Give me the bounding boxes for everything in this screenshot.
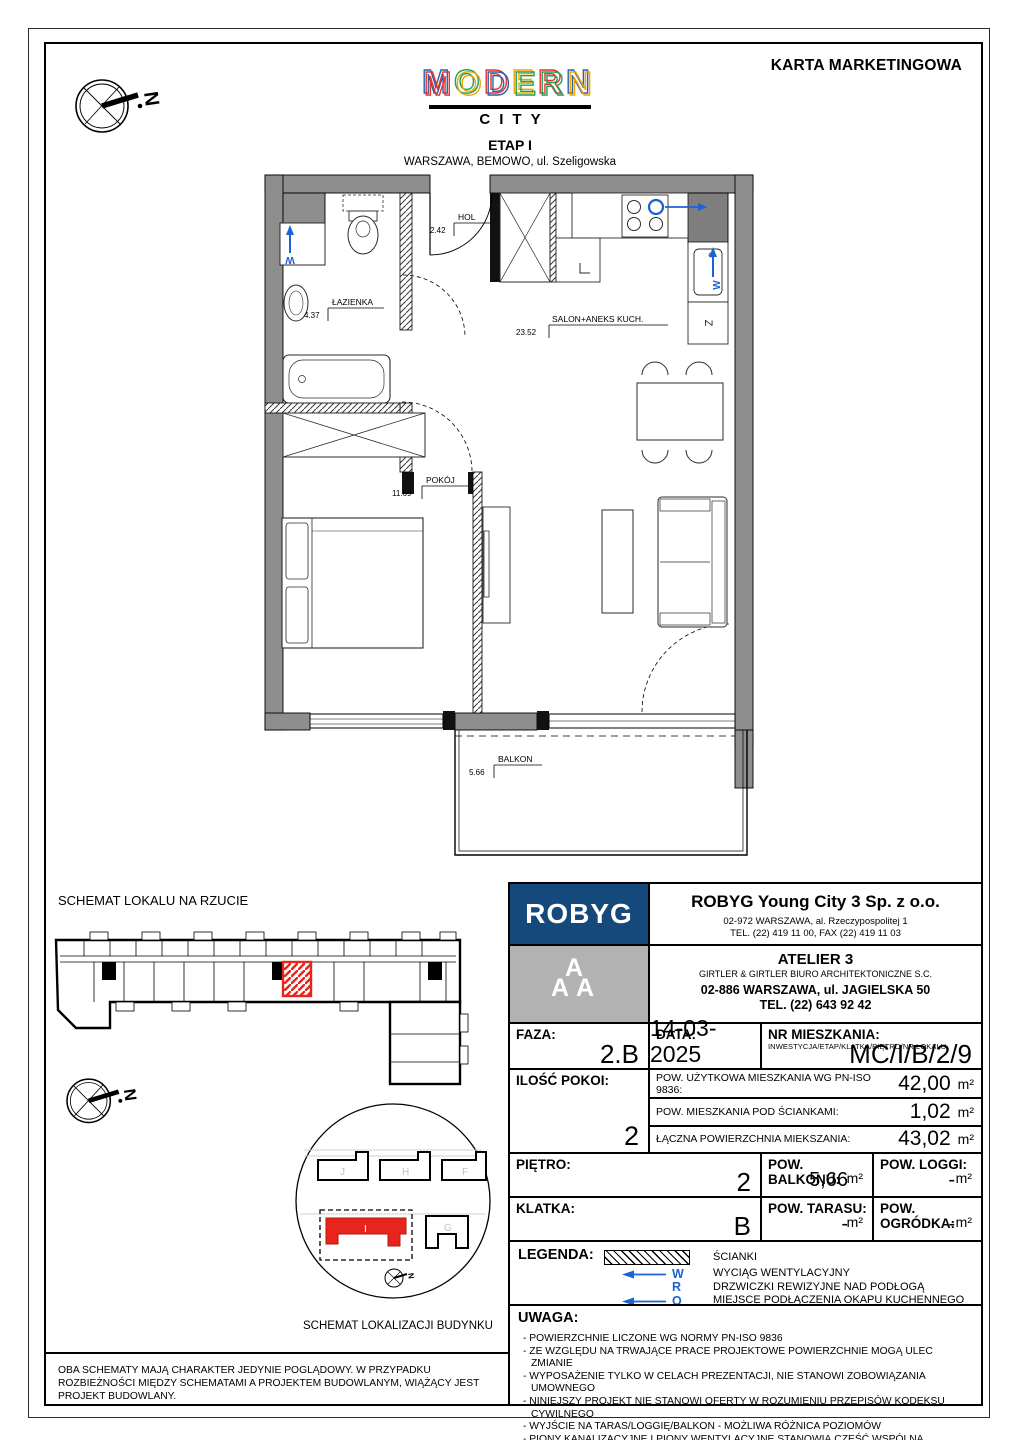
legend-item-label: WYCIĄG WENTYLACYJNY bbox=[713, 1267, 850, 1279]
area-unit: m² bbox=[958, 1131, 974, 1147]
area-row-laczna: ŁĄCZNA POWIERZCHNIA MIEKSZANIA: 43,02 m² bbox=[650, 1125, 981, 1152]
klatka-cell: KLATKA: B bbox=[510, 1198, 760, 1240]
area-value: 42,00 bbox=[898, 1072, 951, 1096]
logo-letter: O bbox=[456, 65, 482, 102]
vent-marker-kitchen: W bbox=[712, 280, 723, 290]
disclaimer-note: OBA SCHEMATY MAJĄ CHARAKTER JEDYNIE POGL… bbox=[44, 1352, 508, 1406]
balkon-unit: m² bbox=[847, 1165, 863, 1191]
legend-label: LEGENDA: bbox=[518, 1247, 594, 1263]
room-area: 5.66 bbox=[469, 768, 485, 777]
taras-unit: m² bbox=[847, 1209, 863, 1235]
room-name: ŁAZIENKA bbox=[332, 297, 373, 307]
pietro-row: PIĘTRO: 2 POW. BALKONU: 5,66 m² POW. LOG… bbox=[510, 1152, 981, 1196]
legend-arrow-icon bbox=[622, 1270, 666, 1279]
building-location-schematic: J H F G I N bbox=[292, 1098, 498, 1313]
architect-phone: TEL. (22) 643 92 42 bbox=[650, 998, 981, 1012]
ogrodek-value: - bbox=[948, 1211, 955, 1237]
legend-item-label: ŚCIANKI bbox=[713, 1251, 757, 1263]
north-compass-icon: N bbox=[70, 70, 166, 140]
document-title: KARTA MARKETINGOWA bbox=[771, 57, 962, 75]
taras-cell: POW. TARASU: - m² bbox=[760, 1198, 872, 1240]
bedroom-furniture bbox=[282, 413, 425, 648]
building-label: H bbox=[402, 1167, 409, 1178]
atelier-logo-letter: A bbox=[576, 976, 594, 1001]
areas-cell: POW. UŻYTKOWA MIESZKANIA WG PN-ISO 9836:… bbox=[648, 1070, 981, 1152]
sink-marker: Z bbox=[702, 320, 714, 327]
rooms-areas-row: ILOŚĆ POKOI: 2 POW. UŻYTKOWA MIESZKANIA … bbox=[510, 1068, 981, 1152]
logo-city-text: CITY bbox=[364, 111, 656, 128]
balkon-cell: POW. BALKONU: 5,66 m² bbox=[760, 1154, 872, 1196]
architect-subtitle: GIRTLER & GIRTLER BIURO ARCHITEKTONICZNE… bbox=[650, 969, 981, 979]
architect-info: ATELIER 3 GIRTLER & GIRTLER BIURO ARCHIT… bbox=[648, 946, 981, 1022]
loggia-cell: POW. LOGGI: - m² bbox=[872, 1154, 981, 1196]
area-row-uzytkowa: POW. UŻYTKOWA MIESZKANIA WG PN-ISO 9836:… bbox=[650, 1070, 981, 1097]
building-label-highlighted: I bbox=[364, 1224, 367, 1235]
data-value: 14-03-2025 bbox=[650, 1015, 758, 1067]
atelier-logo-letter: A bbox=[551, 976, 569, 1001]
room-area: 2.42 bbox=[430, 226, 446, 235]
uwaga-item: - ZE WZGLĘDU NA TRWAJĄCE PRACE PROJEKTOW… bbox=[523, 1346, 975, 1371]
robyg-logo-cell: ROBYG bbox=[510, 884, 648, 944]
balcony-outline bbox=[455, 730, 747, 855]
compass-letter: N bbox=[120, 1088, 140, 1103]
klatka-row: KLATKA: B POW. TARASU: - m² POW. OGRÓDKA… bbox=[510, 1196, 981, 1240]
logo-underline bbox=[429, 105, 591, 109]
location-schematic-title: SCHEMAT LOKALIZACJI BUDYNKU bbox=[286, 1320, 510, 1332]
uwaga-list: - POWIERZCHNIE LICZONE WG NORMY PN-ISO 9… bbox=[523, 1333, 975, 1440]
faza-label: FAZA: bbox=[516, 1027, 556, 1042]
uwaga-row: UWAGA: - POWIERZCHNIE LICZONE WG NORMY P… bbox=[510, 1304, 981, 1404]
area-unit: m² bbox=[958, 1104, 974, 1120]
modern-city-logo: M O D E R N M O D E R N bbox=[420, 58, 600, 104]
faza-value: 2.B bbox=[600, 1041, 639, 1067]
ogrodek-cell: POW. OGRÓDKA: - m² bbox=[872, 1198, 981, 1240]
pietro-cell: PIĘTRO: 2 bbox=[510, 1154, 760, 1196]
room-name: POKÓJ bbox=[426, 475, 455, 485]
nr-cell: NR MIESZKANIA: INWESTYCJA/ETAP/KLATKA/PI… bbox=[760, 1024, 981, 1068]
header-block: M O D E R N M O D E R N CITY ETAP I WARS… bbox=[364, 58, 656, 168]
area-value: 1,02 bbox=[910, 1100, 951, 1124]
architect-name: ATELIER 3 bbox=[650, 951, 981, 968]
uwaga-item: - PIONY KANALIZACYJNE I PIONY WENTYLACYJ… bbox=[523, 1434, 975, 1440]
faza-data-nr-row: FAZA: 2.B DATA: 14-03-2025 NR MIESZKANIA… bbox=[510, 1022, 981, 1068]
apartment-floor-plan: W W Z ŁAZIENKA bbox=[250, 163, 760, 873]
ogrodek-unit: m² bbox=[956, 1209, 972, 1235]
building-label: J bbox=[340, 1167, 345, 1178]
north-compass-icon-2: N bbox=[62, 1070, 142, 1130]
label-hol: HOL 2.42 bbox=[430, 212, 490, 236]
room-name: SALON+ANEKS KUCH. bbox=[552, 314, 643, 324]
logo-letter: R bbox=[540, 65, 564, 102]
uwaga-item: - WYJŚCIE NA TARAS/LOGGIĘ/BALKON - MOŻLI… bbox=[523, 1421, 975, 1434]
architect-row: A A A ATELIER 3 GIRTLER & GIRTLER BIURO … bbox=[510, 944, 981, 1022]
legend-row: LEGENDA: ŚCIANKI W WYCIĄG WENTYLACYJNY R… bbox=[510, 1240, 981, 1304]
rooms-value: 2 bbox=[624, 1123, 639, 1149]
legend-item-label: DRZWICZKI REWIZYJNE NAD PODŁOGĄ bbox=[713, 1281, 924, 1293]
room-area: 23.52 bbox=[516, 328, 537, 337]
nr-value: MC/I/B/2/9 bbox=[849, 1041, 972, 1067]
label-lazienka: ŁAZIENKA 4.37 bbox=[304, 297, 384, 321]
developer-name: ROBYG Young City 3 Sp. z o.o. bbox=[650, 892, 981, 912]
developer-row: ROBYG ROBYG Young City 3 Sp. z o.o. 02-9… bbox=[510, 884, 981, 944]
room-area: 4.37 bbox=[304, 311, 320, 320]
building-label: F bbox=[462, 1167, 468, 1178]
atelier-logo-cell: A A A bbox=[510, 946, 648, 1022]
uwaga-item: - POWIERZCHNIE LICZONE WG NORMY PN-ISO 9… bbox=[523, 1333, 975, 1346]
uwaga-item: - NINIEJSZY PROJEKT NIE STANOWI OFERTY W… bbox=[523, 1396, 975, 1421]
pietro-label: PIĘTRO: bbox=[516, 1157, 571, 1172]
data-cell: DATA: 14-03-2025 bbox=[648, 1024, 760, 1068]
legend-symbol-w: W bbox=[672, 1267, 698, 1281]
compass-letter: N bbox=[139, 90, 163, 107]
vent-marker-bathroom: W bbox=[285, 254, 295, 265]
dining-table bbox=[637, 383, 723, 440]
atelier3-logo: A A A bbox=[510, 946, 648, 1022]
uwaga-label: UWAGA: bbox=[518, 1310, 578, 1326]
uwaga-item: - WYPOSAŻENIE TYLKO W CELACH PREZENTACJI… bbox=[523, 1371, 975, 1396]
architect-address: 02-886 WARSZAWA, ul. JAGIELSKA 50 bbox=[650, 983, 981, 997]
pietro-value: 2 bbox=[737, 1169, 751, 1195]
building-label: G bbox=[444, 1223, 452, 1234]
room-area: 11.69 bbox=[392, 489, 412, 498]
robyg-logo: ROBYG bbox=[510, 884, 648, 944]
label-balkon: BALKON 5.66 bbox=[469, 754, 542, 778]
loggia-unit: m² bbox=[956, 1165, 972, 1191]
label-salon: SALON+ANEKS KUCH. 23.52 bbox=[516, 314, 668, 338]
room-name: BALKON bbox=[498, 754, 533, 764]
scianki-hatch-swatch bbox=[604, 1250, 690, 1265]
rooms-count-cell: ILOŚĆ POKOI: 2 bbox=[510, 1070, 648, 1152]
area-label: ŁĄCZNA POWIERZCHNIA MIEKSZANIA: bbox=[656, 1133, 850, 1145]
rooms-label: ILOŚĆ POKOI: bbox=[516, 1073, 609, 1088]
logo-letter: D bbox=[486, 65, 510, 102]
developer-address: 02-972 WARSZAWA, al. Rzeczypospolitej 1 bbox=[650, 916, 981, 927]
highlighted-unit bbox=[283, 962, 311, 996]
marketing-info-table: ROBYG ROBYG Young City 3 Sp. z o.o. 02-9… bbox=[508, 882, 983, 1406]
area-unit: m² bbox=[958, 1076, 974, 1092]
area-label: POW. UŻYTKOWA MIESZKANIA WG PN-ISO 9836: bbox=[656, 1072, 898, 1096]
stage-label: ETAP I bbox=[364, 137, 656, 153]
klatka-label: KLATKA: bbox=[516, 1201, 575, 1216]
klatka-value: B bbox=[734, 1213, 751, 1239]
logo-letter: N bbox=[568, 65, 592, 102]
balkon-value: 5,66 bbox=[809, 1167, 848, 1193]
logo-letter: E bbox=[514, 65, 536, 102]
area-label: POW. MIESZKANIA POD ŚCIANKAMI: bbox=[656, 1106, 839, 1118]
loggia-value: - bbox=[948, 1167, 955, 1193]
room-labels: ŁAZIENKA 4.37 HOL 2.42 SALON+ANEKS KUCH.… bbox=[304, 212, 668, 778]
developer-phone: TEL. (22) 419 11 00, FAX (22) 419 11 03 bbox=[650, 928, 981, 939]
floor-schematic-title: SCHEMAT LOKALU NA RZUCIE bbox=[58, 893, 248, 908]
legend-symbol-r: R bbox=[672, 1280, 698, 1294]
faza-cell: FAZA: 2.B bbox=[510, 1024, 648, 1068]
livingroom-furniture bbox=[483, 362, 727, 627]
developer-info: ROBYG Young City 3 Sp. z o.o. 02-972 WAR… bbox=[648, 884, 981, 944]
area-value: 43,02 bbox=[898, 1127, 951, 1151]
coffee-table bbox=[602, 510, 633, 613]
logo-letter: M bbox=[424, 65, 452, 102]
area-row-scianki: POW. MIESZKANIA POD ŚCIANKAMI: 1,02 m² bbox=[650, 1097, 981, 1124]
room-name: HOL bbox=[458, 212, 476, 222]
